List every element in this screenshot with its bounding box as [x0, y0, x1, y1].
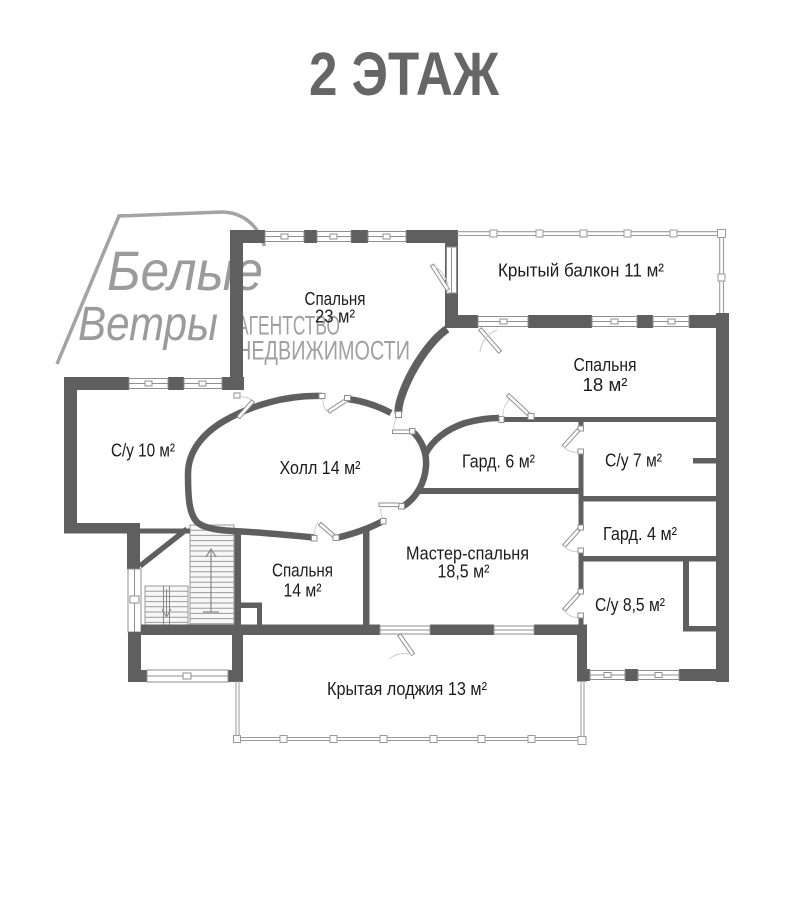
svg-text:18,5 м²: 18,5 м² — [438, 561, 490, 582]
svg-text:НЕДВИЖИМОСТИ: НЕДВИЖИМОСТИ — [237, 336, 410, 366]
svg-text:С/у 10 м²: С/у 10 м² — [111, 440, 175, 461]
svg-text:23 м²: 23 м² — [315, 306, 355, 327]
svg-text:Спальня: Спальня — [272, 560, 333, 581]
svg-text:Гард. 4 м²: Гард. 4 м² — [603, 523, 677, 544]
svg-text:Крытая лоджия 13 м²: Крытая лоджия 13 м² — [327, 678, 487, 699]
svg-text:2 ЭТАЖ: 2 ЭТАЖ — [309, 40, 500, 108]
svg-text:14 м²: 14 м² — [284, 580, 322, 601]
svg-text:Гард. 6 м²: Гард. 6 м² — [462, 451, 535, 472]
svg-text:Крытый балкон 11 м²: Крытый балкон 11 м² — [498, 260, 664, 281]
svg-text:18 м²: 18 м² — [583, 374, 628, 395]
svg-text:С/у 8,5 м²: С/у 8,5 м² — [595, 594, 665, 615]
svg-text:Холл 14 м²: Холл 14 м² — [280, 457, 361, 478]
svg-text:С/у 7 м²: С/у 7 м² — [605, 450, 662, 471]
svg-text:Ветры: Ветры — [78, 298, 218, 351]
svg-text:Спальня: Спальня — [574, 354, 637, 375]
